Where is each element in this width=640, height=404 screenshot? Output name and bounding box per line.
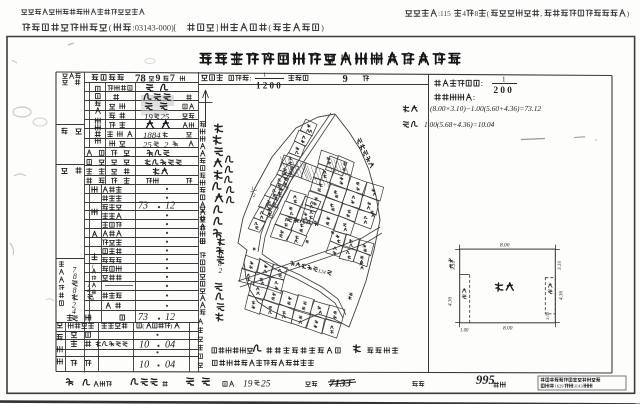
svg-text:(: ( [268,24,271,33]
svg-text:19: 19 [144,112,153,122]
svg-text:12: 12 [165,312,175,323]
svg-text:3.10: 3.10 [451,261,457,270]
svg-text:8: 8 [73,272,77,281]
svg-text:(: ( [109,24,112,33]
svg-text:4: 4 [87,286,91,295]
svg-text:12: 12 [165,201,175,212]
svg-text:10: 10 [139,359,149,370]
svg-text:9: 9 [156,73,161,84]
svg-text:2: 2 [219,266,223,275]
svg-text:1 2 0 0: 1 2 0 0 [256,81,281,91]
svg-text:1629: 1629 [554,384,564,389]
svg-text::115: :115 [438,9,451,18]
svg-text:,: , [540,9,542,18]
svg-text:1: 1 [502,76,506,84]
svg-text:8: 8 [73,286,77,295]
svg-text:3143: 3143 [574,384,584,389]
svg-text:8: 8 [475,9,479,18]
svg-text:): ) [170,323,172,330]
svg-text:9: 9 [343,74,348,85]
svg-text:19: 19 [243,380,253,390]
svg-text:995: 995 [476,373,495,387]
svg-text:3.10: 3.10 [557,261,563,270]
svg-text:4.36: 4.36 [447,297,454,306]
svg-text:(: ( [142,323,144,330]
svg-text:): ) [321,24,324,33]
svg-text:04: 04 [165,359,175,370]
svg-text:]: ] [216,24,219,33]
svg-text:25: 25 [143,139,152,149]
svg-text:4: 4 [462,9,466,18]
svg-text:04: 04 [165,340,175,351]
svg-text:): ) [92,296,94,303]
svg-text::: : [481,79,483,88]
svg-text:2: 2 [164,139,169,149]
svg-text:4.36: 4.36 [558,291,565,300]
svg-text:4: 4 [72,307,76,316]
svg-text:2 0 0: 2 0 0 [494,85,513,95]
svg-text:10: 10 [139,340,149,351]
svg-text:1: 1 [263,72,266,79]
svg-text:73: 73 [138,312,148,323]
svg-text:1.00(5.68+4.36)=10.04: 1.00(5.68+4.36)=10.04 [424,120,495,129]
svg-text:(8.00×3.10)−1.00(5.60+4.36)=73: (8.00×3.10)−1.00(5.60+4.36)=73.12 [430,104,541,113]
svg-text::03143-000)[: :03143-000)[ [132,24,176,33]
svg-text::: : [473,93,475,102]
svg-text:7: 7 [170,73,175,84]
svg-text:78: 78 [135,72,146,84]
svg-text:25: 25 [161,112,170,122]
svg-text:8.00: 8.00 [503,326,513,332]
svg-text::: : [249,74,251,83]
svg-text:1.00: 1.00 [545,311,550,320]
svg-text:8.00: 8.00 [500,243,510,249]
svg-text:73: 73 [138,201,148,212]
svg-text:1.00: 1.00 [460,329,469,334]
svg-text:25: 25 [261,380,271,390]
